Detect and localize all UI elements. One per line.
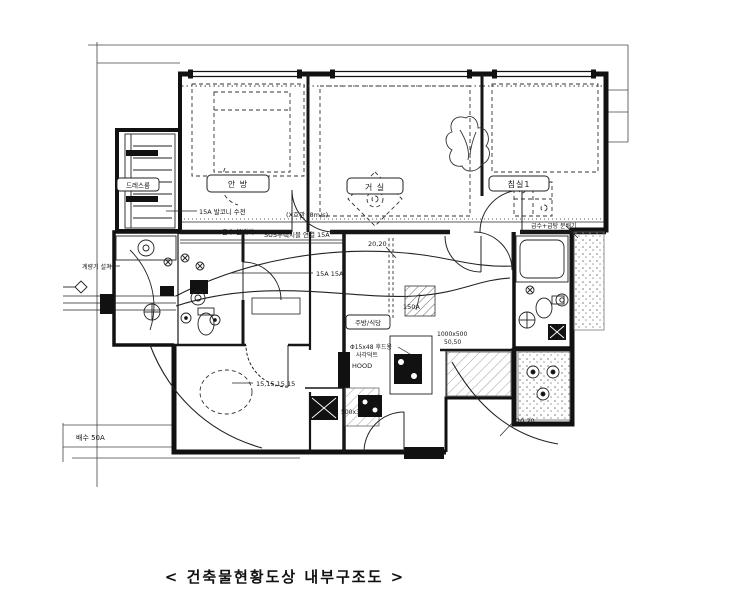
bathtub-icon <box>516 236 568 282</box>
label-dim-bottom: 20,20 <box>516 417 535 425</box>
label-duct-150a: 150A <box>403 303 420 311</box>
room-label-dress-room: 드레스룸 <box>126 181 150 190</box>
window-master <box>188 70 302 79</box>
kitchen-sink-icon <box>394 354 422 384</box>
duct-shaft-hatch <box>405 286 435 316</box>
label-riser-pipe: (X호관 (8m/s) <box>286 210 328 219</box>
utility-balcony-stipple <box>518 352 570 420</box>
label-dim-50-50: 50,50 <box>444 339 461 346</box>
drain-icon <box>138 240 154 256</box>
label-pipe-15a: 15A 15A <box>316 270 344 278</box>
label-hood-duct2: 사각덕트 <box>356 351 379 359</box>
label-meter: 계량기 설치 <box>82 263 112 271</box>
room-label-master-bedroom: 안 방 <box>228 179 248 189</box>
label-supply-distributor: 급수+급탕 분배기 <box>531 222 577 230</box>
door-arc-hall <box>445 236 481 272</box>
label-dim-500x300: 500x300 <box>341 409 368 416</box>
label-balcony-faucet: 15A 발코니 수전 <box>199 207 246 216</box>
toilet-icon <box>198 308 214 335</box>
door-arc-bedroom1 <box>480 190 522 232</box>
window-living <box>330 70 472 79</box>
windows <box>188 70 596 79</box>
room-label-kitchen-dining: 주방/식당 <box>355 318 381 327</box>
window-bedroom1 <box>492 70 596 79</box>
label-hood-duct: Φ15x48 후드용 <box>350 343 392 351</box>
label-dim-1000x500: 1000x500 <box>437 331 467 338</box>
door-swing-dashed <box>200 370 252 414</box>
bathroom2-fixtures <box>516 236 568 340</box>
air-duct-stipple <box>574 232 604 330</box>
label-hot-water-distributor: 온수 분배기 <box>222 227 254 236</box>
valve-icon <box>164 254 204 270</box>
sink-icon <box>519 312 535 328</box>
distributor-box <box>252 298 300 314</box>
label-dim-15s: 15,15,15,15 <box>256 380 295 388</box>
sink-icon <box>144 304 160 320</box>
label-sus-flexible: SUS후렉시블 연결 15A <box>264 230 330 239</box>
room-label-living-room: 거 실 <box>365 182 385 192</box>
label-drain-50a: 배수 50A <box>76 433 105 442</box>
room-label-bedroom1: 침실1 <box>508 179 531 189</box>
insulation-hatch <box>447 352 511 396</box>
floor-plan-page: 안 방 거 실 침실1 드레스룸 주방/식당 15A 발코니 수전 (X호관 (… <box>0 0 739 600</box>
label-hood: HOOD <box>352 362 372 370</box>
drawing-caption: < 건축물현황도상 내부구조도 > <box>60 566 510 587</box>
manifold-block <box>190 280 208 294</box>
bathroom1-fixtures <box>63 236 300 335</box>
floor-plan-drawing: 안 방 거 실 침실1 드레스룸 주방/식당 15A 발코니 수전 (X호관 (… <box>0 0 739 600</box>
meter-box <box>100 294 114 314</box>
meter-diamond-icon <box>63 281 87 293</box>
label-dim-top: 20,20 <box>368 240 387 248</box>
bed-outline <box>214 92 290 172</box>
